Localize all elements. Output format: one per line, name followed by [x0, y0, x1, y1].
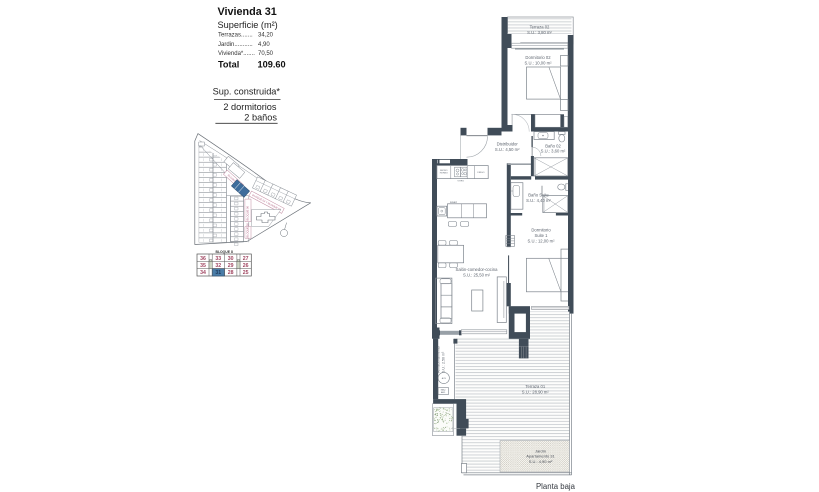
- svg-text:35: 35: [200, 263, 206, 269]
- svg-text:Terrazas.......: Terrazas.......: [218, 32, 253, 38]
- svg-text:VITRO: VITRO: [457, 180, 464, 182]
- svg-text:MAQ.: MAQ.: [441, 389, 447, 392]
- svg-text:70,50: 70,50: [258, 51, 274, 57]
- svg-text:BLOQUE 8: BLOQUE 8: [216, 250, 233, 254]
- svg-text:31: 31: [215, 270, 221, 276]
- svg-text:S.U.: 4,90 m²: S.U.: 4,90 m²: [529, 459, 553, 464]
- svg-text:Apartamento 31: Apartamento 31: [526, 454, 555, 459]
- svg-text:Terraza 02: Terraza 02: [530, 25, 550, 30]
- svg-text:36: 36: [200, 256, 206, 262]
- svg-text:27: 27: [243, 256, 249, 262]
- svg-text:2 dormitorios: 2 dormitorios: [223, 102, 277, 112]
- svg-text:Distribuidor: Distribuidor: [497, 142, 519, 147]
- svg-text:Suite 1: Suite 1: [534, 233, 548, 238]
- svg-text:2 baños: 2 baños: [244, 113, 277, 123]
- svg-text:Dormitorio 02: Dormitorio 02: [525, 55, 551, 60]
- svg-text:S.U.: 25,50 m²: S.U.: 25,50 m²: [463, 273, 491, 278]
- svg-text:S.U.: 10,00 m²: S.U.: 10,00 m²: [525, 61, 553, 66]
- svg-text:Sup. construida*: Sup. construida*: [213, 87, 281, 97]
- svg-text:26: 26: [243, 263, 249, 269]
- svg-text:30: 30: [228, 256, 234, 262]
- svg-text:Jardín: Jardín: [535, 448, 546, 453]
- svg-text:Terraza 01: Terraza 01: [525, 384, 545, 389]
- svg-text:AER.: AER.: [441, 391, 446, 394]
- svg-text:Salón-comedor-cocina: Salón-comedor-cocina: [456, 267, 499, 272]
- svg-text:29: 29: [228, 263, 234, 269]
- svg-text:Dormitorio: Dormitorio: [531, 227, 551, 232]
- svg-text:Vivienda 31: Vivienda 31: [218, 6, 277, 18]
- svg-text:BLOQUE 06: BLOQUE 06: [245, 206, 249, 221]
- svg-text:34: 34: [200, 270, 206, 276]
- svg-text:Planta baja: Planta baja: [536, 482, 576, 491]
- svg-text:33: 33: [215, 256, 221, 262]
- svg-text:S.U.: 4,50 m²: S.U.: 4,50 m²: [495, 147, 520, 152]
- svg-text:Superficie (m²): Superficie (m²): [218, 20, 278, 30]
- svg-text:34,20: 34,20: [258, 32, 274, 38]
- svg-text:HORNO: HORNO: [440, 173, 448, 175]
- svg-text:28: 28: [228, 270, 234, 276]
- svg-text:4,90: 4,90: [258, 42, 270, 48]
- svg-text:25: 25: [243, 270, 249, 276]
- svg-text:FRIGO: FRIGO: [478, 172, 485, 174]
- svg-text:ACS: ACS: [442, 377, 447, 380]
- svg-text:Almacenamiento: Almacenamiento: [437, 346, 441, 373]
- svg-text:MICRO: MICRO: [440, 170, 448, 172]
- svg-text:109.60: 109.60: [258, 60, 286, 70]
- svg-text:Total: Total: [218, 60, 239, 70]
- svg-text:S.U.: 2,50 m²: S.U.: 2,50 m²: [442, 351, 446, 373]
- svg-text:32: 32: [215, 263, 221, 269]
- svg-text:BLOQUE 05: BLOQUE 05: [245, 223, 249, 238]
- svg-text:Jardin...........: Jardin...........: [218, 42, 253, 48]
- svg-text:Vivienda*.......: Vivienda*.......: [218, 51, 255, 57]
- svg-text:S.U.: 12,00 m²: S.U.: 12,00 m²: [528, 238, 556, 243]
- svg-text:S.U.: 3,80 m²: S.U.: 3,80 m²: [527, 30, 552, 35]
- svg-text:Baño Suite: Baño Suite: [528, 193, 549, 198]
- svg-text:S.U.: 28,90 m²: S.U.: 28,90 m²: [522, 389, 550, 394]
- svg-text:S.U.: 3,60 m²: S.U.: 3,60 m²: [541, 148, 566, 153]
